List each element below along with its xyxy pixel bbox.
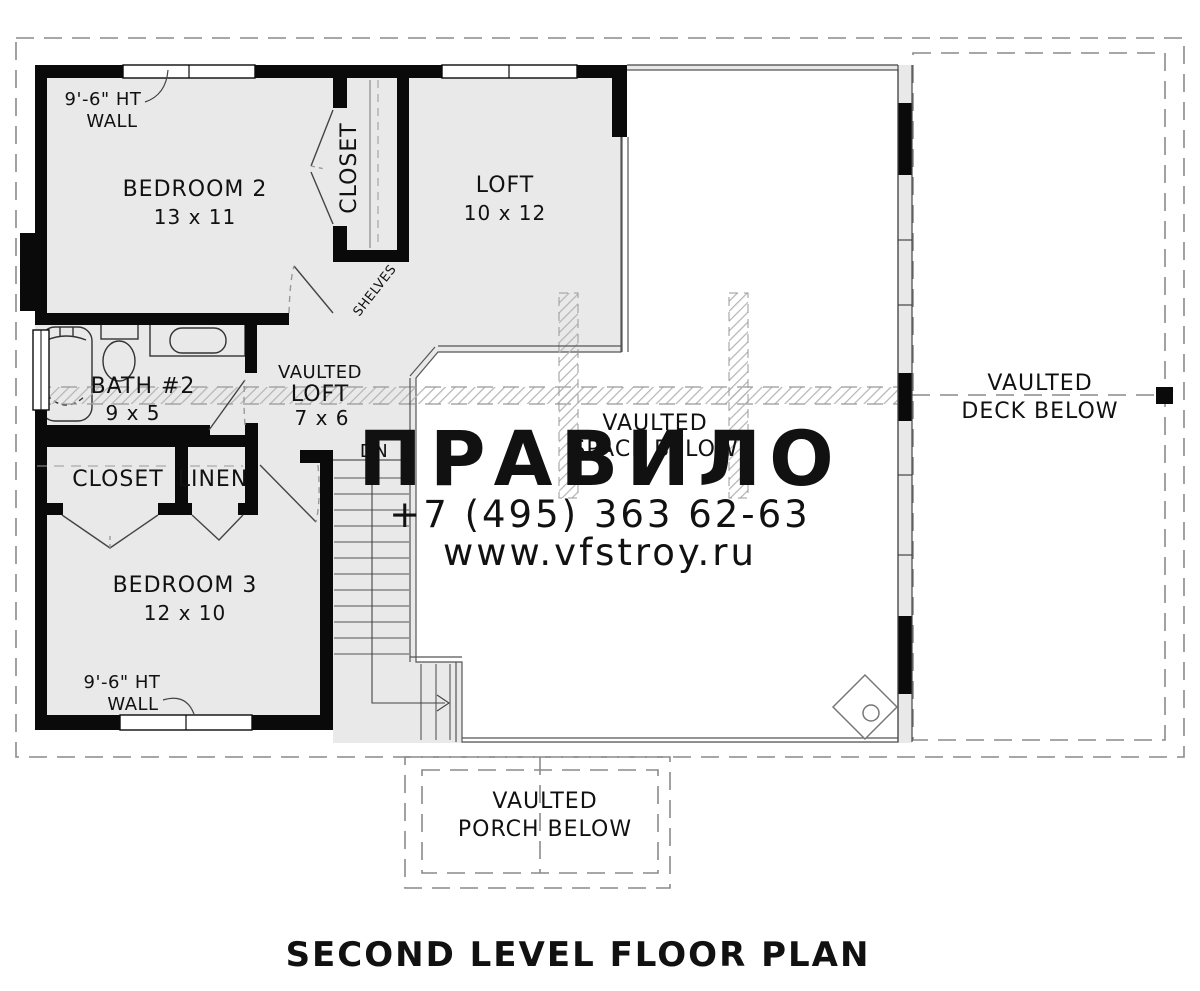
closet2-stub-top xyxy=(333,78,347,108)
vaulted-porch-line1: VAULTED xyxy=(492,789,597,814)
closet3-label: CLOSET xyxy=(72,467,163,492)
closet2-right-wall xyxy=(397,78,409,262)
bath2-dims: 9 x 5 xyxy=(106,401,161,425)
vaulted-loft-line2: LOFT xyxy=(291,382,350,407)
loft-label: LOFT xyxy=(476,173,535,198)
closet3-top-wall xyxy=(35,435,258,447)
right-wall-seg2 xyxy=(898,373,912,421)
bath2-label: BATH #2 xyxy=(91,374,196,399)
watermark-phone: +7 (495) 363 62-63 xyxy=(389,493,810,536)
wall-left-lower xyxy=(35,410,47,730)
vaulted-loft-dims: 7 x 6 xyxy=(295,406,350,430)
closet3-bottom-seg2 xyxy=(158,503,192,515)
loft-dims: 10 x 12 xyxy=(464,201,546,225)
vaulted-deck-line1: VAULTED xyxy=(987,371,1092,396)
stairs-down-label: DN xyxy=(360,441,388,462)
wall-bath-top xyxy=(35,313,247,325)
loft-right-wall xyxy=(612,65,627,137)
deck-post xyxy=(1156,387,1173,404)
vaulted-porch-line2: PORCH BELOW xyxy=(458,817,632,842)
closet2-stub-bottom xyxy=(333,226,347,262)
bath-hall-divider xyxy=(245,313,257,373)
bedroom3-label: BEDROOM 3 xyxy=(113,573,258,598)
closet2-label: CLOSET xyxy=(337,122,362,213)
bedroom3-right-wall xyxy=(320,460,333,730)
closet2-bottom-wall xyxy=(345,250,409,262)
vaulted-deck-line2: DECK BELOW xyxy=(961,399,1118,424)
linen-label: LINEN xyxy=(178,467,249,492)
bedroom3-dims: 12 x 10 xyxy=(144,601,226,625)
vaulted-space-line2: SPACE BELOW xyxy=(571,437,738,462)
closet3-bottom-seg3 xyxy=(238,503,258,515)
vaulted-loft-line1: VAULTED xyxy=(278,362,362,383)
right-wall-seg3 xyxy=(898,616,912,694)
wall-height-bottom-line2: WALL xyxy=(107,694,158,715)
vaulted-space-line1: VAULTED xyxy=(602,411,707,436)
floor-plan-page: ПРАВИЛО +7 (495) 363 62-63 www.vfstroy.r… xyxy=(0,0,1200,991)
wall-height-top-line1: 9'-6" HT xyxy=(65,89,142,110)
right-wall-seg1 xyxy=(898,103,912,175)
floor-plan-drawing: ПРАВИЛО +7 (495) 363 62-63 www.vfstroy.r… xyxy=(0,0,1200,991)
bedroom2-dims: 13 x 11 xyxy=(154,205,236,229)
watermark-site: www.vfstroy.ru xyxy=(443,531,757,574)
wall-height-top-line2: WALL xyxy=(86,111,137,132)
bedroom2-label: BEDROOM 2 xyxy=(123,177,268,202)
wall-left-tab xyxy=(20,233,35,311)
wall-left-upper xyxy=(35,65,47,317)
wall-height-bottom-line1: 9'-6" HT xyxy=(84,672,161,693)
plan-title: SECOND LEVEL FLOOR PLAN xyxy=(286,935,871,975)
deck-inner-outline xyxy=(913,53,1165,740)
closet3-bottom-seg1 xyxy=(35,503,63,515)
